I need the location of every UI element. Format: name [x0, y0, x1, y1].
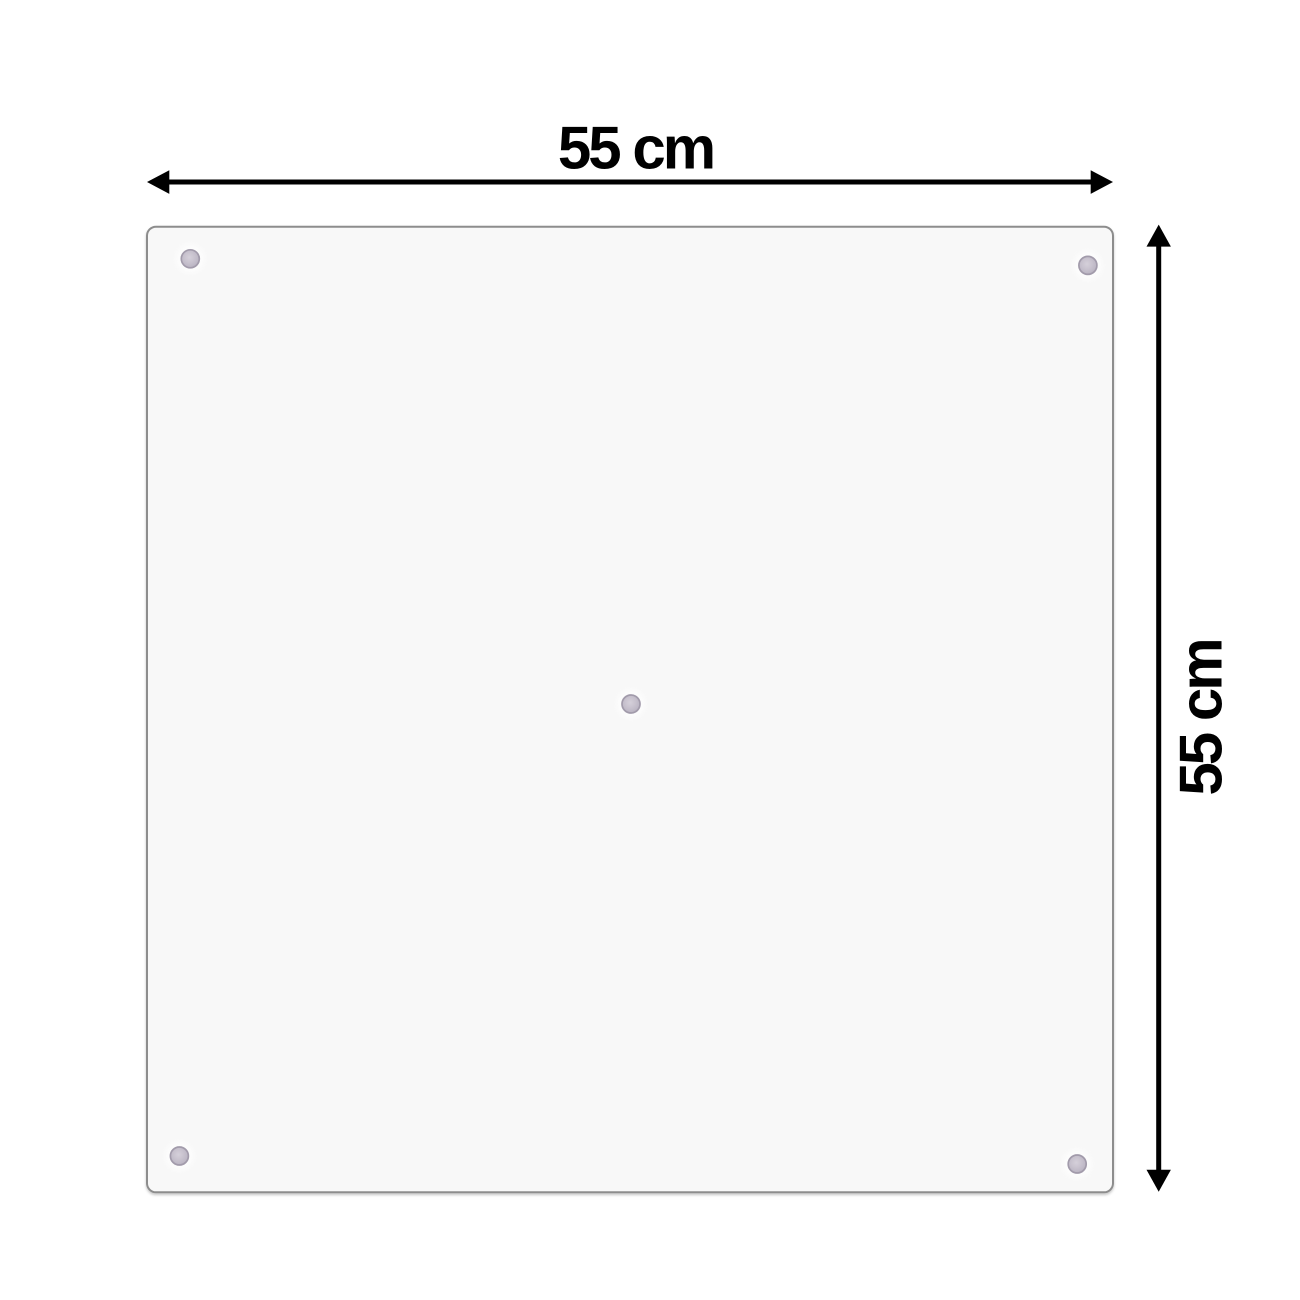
svg-text:55 cm: 55 cm — [558, 115, 713, 182]
svg-text:55 cm: 55 cm — [1167, 640, 1234, 795]
